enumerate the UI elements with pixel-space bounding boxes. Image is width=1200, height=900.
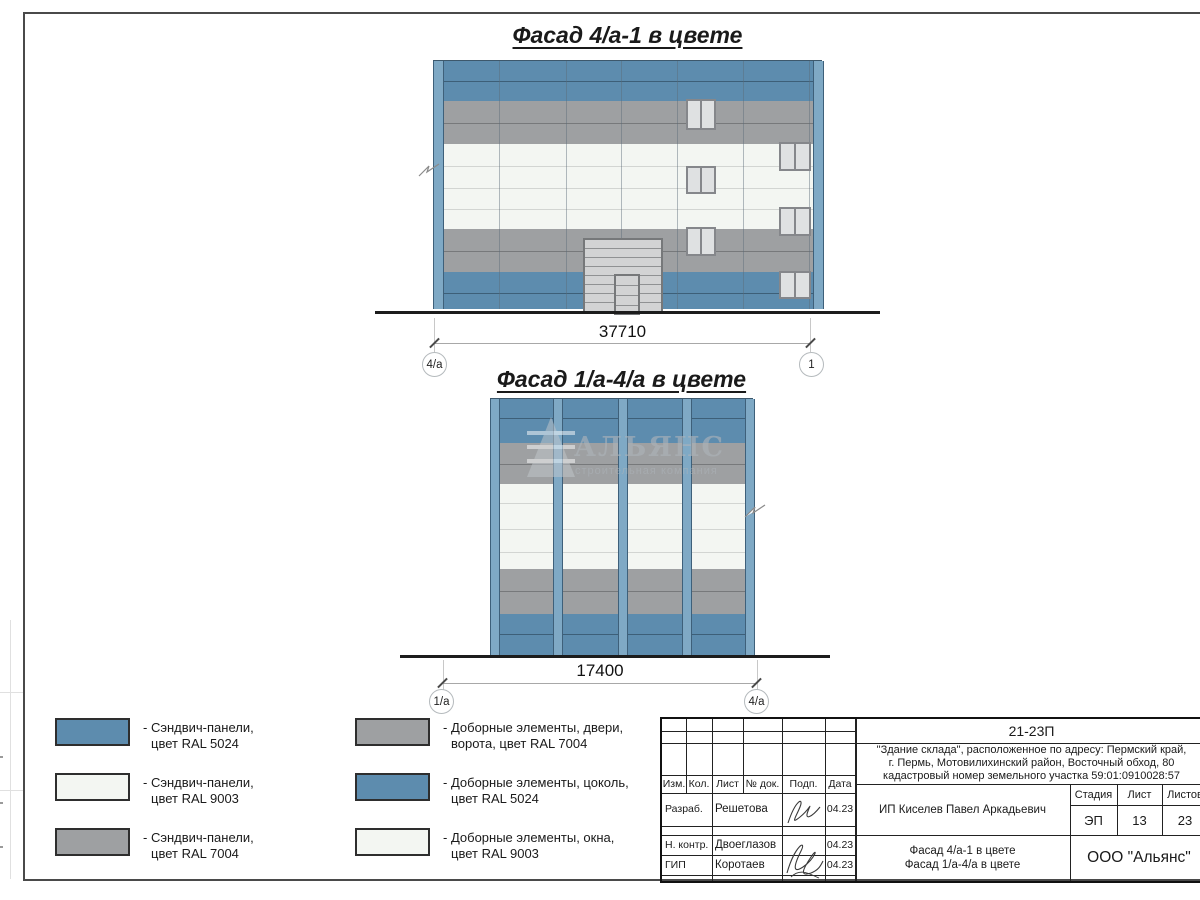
panel-band-gray [433, 101, 822, 144]
legend-line: - Сэндвич-панели, [143, 775, 254, 791]
margin-stamp-text-cut [0, 756, 3, 758]
sheet-label: Лист [1117, 784, 1162, 805]
margin-stamp-text-cut [0, 846, 3, 848]
panel-band-white [433, 144, 822, 229]
title-block-grid-line [662, 793, 855, 794]
extension-line [757, 660, 758, 692]
legend-item: - Сэндвич-панели, цвет RAL 9003 [55, 773, 254, 807]
role-gip: ГИП [665, 858, 712, 872]
panel-joint [743, 61, 744, 309]
drawing-sheet: Фасад 4/а-1 в цвете [0, 0, 1200, 900]
title-block-grid-line [662, 731, 855, 732]
frame-top-border [23, 12, 1200, 14]
color-swatch-ral5024 [55, 718, 130, 746]
client-name: ИП Киселев Павел Аркадьевич [855, 784, 1070, 835]
facade1-title: Фасад 4/а-1 в цвете [433, 22, 822, 49]
title-block-grid-line [662, 855, 855, 856]
frame-left-border [23, 12, 25, 881]
legend-line: ворота, цвет RAL 7004 [443, 736, 623, 752]
watermark-company-name: АЛЬЯНС [574, 432, 725, 463]
pilaster [745, 399, 755, 657]
header-data: Дата [825, 775, 855, 793]
legend-item: - Доборные элементы, двери, ворота, цвет… [355, 718, 623, 752]
title-block-grid-line [662, 826, 855, 827]
break-mark-icon [743, 503, 767, 521]
panel-band-blue [433, 61, 822, 101]
legend-label: - Сэндвич-панели, цвет RAL 7004 [143, 828, 254, 862]
project-description-line: "Здание склада", расположенное по адресу… [877, 744, 1187, 757]
legend-item: - Доборные элементы, окна, цвет RAL 9003 [355, 828, 614, 862]
dimension-line [443, 683, 757, 684]
legend-line: - Доборные элементы, окна, [443, 830, 614, 846]
legend-line: цвет RAL 9003 [443, 846, 614, 862]
facade2-dimension-value: 17400 [443, 661, 757, 681]
signature-nkontr-gip [781, 837, 825, 880]
window [686, 166, 716, 194]
legend-item: - Сэндвич-панели, цвет RAL 5024 [55, 718, 254, 752]
dimension-line [435, 343, 810, 344]
date-razrab: 04.23 [825, 802, 855, 816]
name-nkontr: Двоеглазов [715, 837, 781, 852]
legend-line: - Сэндвич-панели, [143, 720, 254, 736]
legend-item: - Сэндвич-панели, цвет RAL 7004 [55, 828, 254, 862]
corner-pilaster [813, 61, 824, 309]
name-razrab: Решетова [715, 801, 781, 816]
color-swatch-ral5024 [355, 773, 430, 801]
window [779, 207, 811, 236]
date-nkontr: 04.23 [825, 838, 855, 852]
header-doc: № док. [743, 775, 782, 793]
panel-seam [433, 209, 822, 210]
facade1-drawing [433, 60, 822, 309]
role-razrab: Разраб. [665, 802, 712, 816]
facade1-dimension-value: 37710 [435, 322, 810, 342]
panel-seam [433, 188, 822, 189]
legend-line: цвет RAL 5024 [443, 791, 629, 807]
sheet-subject: Фасад 4/а-1 в цвете Фасад 1/а-4/а в цвет… [855, 835, 1070, 881]
legend-label: - Сэндвич-панели, цвет RAL 9003 [143, 773, 254, 807]
legend-line: цвет RAL 5024 [143, 736, 254, 752]
title-block-grid-line [662, 875, 855, 876]
margin-strip-line [10, 620, 11, 879]
header-izm: Изм. [662, 775, 686, 793]
gate [583, 238, 663, 313]
sheet-subject-line: Фасад 4/а-1 в цвете [909, 844, 1015, 858]
color-swatch-ral9003 [355, 828, 430, 856]
date-gip: 04.23 [825, 858, 855, 872]
axis-marker-right: 1 [799, 352, 824, 377]
sheet-subject-line: Фасад 1/а-4/а в цвете [905, 858, 1021, 872]
window [779, 271, 811, 299]
legend-line: цвет RAL 9003 [143, 791, 254, 807]
legend-label: - Доборные элементы, цоколь, цвет RAL 50… [443, 773, 629, 807]
sheets-label: Листов [1162, 784, 1200, 805]
axis-marker-left: 1/а [429, 689, 454, 714]
alliance-logo-icon [527, 417, 575, 477]
extension-line [810, 318, 811, 352]
title-block: 21-23П "Здание склада", расположенное по… [660, 717, 1200, 883]
role-nkontr: Н. контр. [665, 838, 712, 852]
name-gip: Коротаев [715, 857, 781, 872]
sheets-value: 23 [1162, 805, 1200, 835]
window [686, 99, 716, 130]
margin-strip-divider [0, 692, 23, 693]
facade1-ground-line [375, 311, 880, 314]
header-podp: Подп. [782, 775, 825, 793]
project-description-line: кадастровый номер земельного участка 59:… [883, 770, 1180, 783]
header-list: Лист [712, 775, 743, 793]
facade2-title: Фасад 1/а-4/а в цвете [478, 366, 765, 393]
stage-label: Стадия [1070, 784, 1117, 805]
company-name: ООО "Альянс" [1070, 835, 1200, 881]
signature-razrab [784, 795, 822, 829]
color-swatch-ral9003 [55, 773, 130, 801]
axis-marker-left: 4/а [422, 352, 447, 377]
panel-seam [433, 81, 822, 82]
legend-line: цвет RAL 7004 [143, 846, 254, 862]
stage-value: ЭП [1070, 805, 1117, 835]
panel-seam [433, 123, 822, 124]
wicket-door [614, 274, 640, 315]
break-mark-icon [417, 162, 441, 180]
legend-item: - Доборные элементы, цоколь, цвет RAL 50… [355, 773, 629, 807]
color-swatch-ral7004 [355, 718, 430, 746]
legend-line: - Доборные элементы, двери, [443, 720, 623, 736]
panel-joint [499, 61, 500, 309]
project-description-line: г. Пермь, Мотовилихинский район, Восточн… [889, 757, 1175, 770]
facade2-ground-line [400, 655, 830, 658]
legend-label: - Сэндвич-панели, цвет RAL 5024 [143, 718, 254, 752]
corner-pilaster [433, 61, 444, 309]
legend-line: - Сэндвич-панели, [143, 830, 254, 846]
legend-label: - Доборные элементы, окна, цвет RAL 9003 [443, 828, 614, 862]
pilaster [490, 399, 500, 657]
panel-joint [566, 61, 567, 309]
window [686, 227, 716, 256]
watermark-company-tagline: строительная компания [575, 465, 718, 477]
color-swatch-ral7004 [55, 828, 130, 856]
header-kol: Кол. [686, 775, 712, 793]
panel-seam [433, 166, 822, 167]
sheet-value: 13 [1117, 805, 1162, 835]
window [779, 142, 811, 171]
document-code: 21-23П [855, 719, 1200, 743]
margin-stamp-text-cut [0, 802, 3, 804]
axis-marker-right: 4/а [744, 689, 769, 714]
legend-line: - Доборные элементы, цоколь, [443, 775, 629, 791]
project-description: "Здание склада", расположенное по адресу… [855, 743, 1200, 784]
margin-strip-divider [0, 790, 23, 791]
legend-label: - Доборные элементы, двери, ворота, цвет… [443, 718, 623, 752]
panel-joint [677, 61, 678, 309]
